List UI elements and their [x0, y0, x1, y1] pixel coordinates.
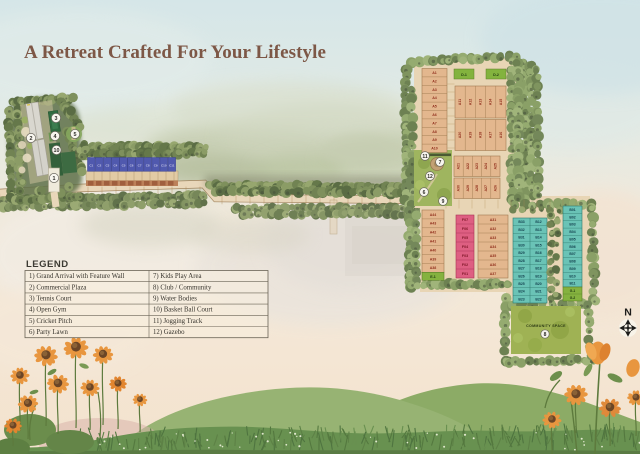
- svg-text:B24: B24: [518, 290, 524, 294]
- svg-text:A15: A15: [499, 99, 503, 106]
- svg-text:A2: A2: [432, 79, 437, 83]
- svg-text:A33: A33: [490, 236, 497, 240]
- svg-text:A13: A13: [478, 99, 482, 106]
- svg-text:C2: C2: [97, 164, 101, 168]
- svg-text:B10: B10: [569, 274, 575, 278]
- svg-text:A29: A29: [466, 185, 470, 192]
- svg-text:G-1: G-1: [570, 289, 576, 293]
- svg-text:C8: C8: [146, 164, 150, 168]
- svg-text:A25: A25: [493, 163, 497, 170]
- svg-text:C6: C6: [130, 164, 134, 168]
- svg-text:B02: B02: [569, 215, 575, 219]
- svg-text:B12: B12: [535, 220, 541, 224]
- svg-text:3: 3: [55, 116, 58, 122]
- svg-text:E-1: E-1: [430, 275, 436, 279]
- svg-text:A17: A17: [489, 132, 493, 139]
- svg-text:F07: F07: [462, 218, 468, 222]
- svg-text:1: 1: [53, 176, 56, 182]
- svg-text:A5: A5: [432, 105, 437, 109]
- svg-text:B25: B25: [518, 282, 524, 286]
- svg-text:B28: B28: [518, 259, 524, 263]
- svg-text:A40: A40: [430, 248, 437, 252]
- svg-text:A6: A6: [432, 113, 437, 117]
- svg-text:A20: A20: [458, 132, 462, 139]
- svg-text:C3: C3: [105, 164, 109, 168]
- svg-text:B17: B17: [535, 259, 541, 263]
- svg-text:2) Commercial Plaza: 2) Commercial Plaza: [29, 284, 86, 291]
- svg-text:9: 9: [442, 199, 445, 205]
- svg-text:A42: A42: [430, 231, 437, 235]
- svg-text:A26: A26: [493, 185, 497, 192]
- svg-text:4) Open Gym: 4) Open Gym: [29, 307, 67, 314]
- svg-text:4: 4: [54, 134, 57, 140]
- svg-text:B23: B23: [518, 297, 524, 301]
- svg-text:F05: F05: [462, 236, 468, 240]
- svg-text:B32: B32: [518, 228, 524, 232]
- svg-text:A8: A8: [432, 130, 437, 134]
- svg-text:B13: B13: [535, 228, 541, 232]
- svg-text:B09: B09: [569, 267, 575, 271]
- svg-text:B11: B11: [569, 282, 575, 286]
- svg-text:C1: C1: [89, 164, 93, 168]
- svg-text:7) Kids Play Area: 7) Kids Play Area: [153, 273, 202, 280]
- svg-text:8: 8: [544, 332, 547, 338]
- svg-text:A3: A3: [432, 88, 437, 92]
- svg-text:A21: A21: [457, 163, 461, 170]
- svg-text:10: 10: [54, 148, 60, 154]
- svg-text:B18: B18: [535, 267, 541, 271]
- svg-text:B31: B31: [518, 236, 524, 240]
- svg-text:A31: A31: [490, 218, 497, 222]
- svg-text:11) Jogging Track: 11) Jogging Track: [153, 318, 203, 325]
- svg-text:COMMUNITY SPACE: COMMUNITY SPACE: [526, 324, 566, 328]
- svg-text:A9: A9: [432, 138, 437, 142]
- svg-text:F06: F06: [462, 227, 468, 231]
- svg-text:A34: A34: [490, 245, 497, 249]
- svg-text:B30: B30: [518, 243, 524, 247]
- svg-text:B04: B04: [569, 230, 575, 234]
- svg-text:A1: A1: [432, 71, 437, 75]
- svg-text:A44: A44: [430, 213, 437, 217]
- svg-text:6: 6: [423, 190, 426, 196]
- svg-text:B26: B26: [518, 274, 524, 278]
- svg-text:B19: B19: [535, 274, 541, 278]
- svg-text:A18: A18: [478, 132, 482, 139]
- svg-text:9) Water Bodies: 9) Water Bodies: [153, 296, 197, 303]
- svg-text:12: 12: [427, 174, 433, 180]
- svg-text:A11: A11: [458, 99, 462, 105]
- svg-text:B07: B07: [569, 252, 575, 256]
- svg-text:1) Grand Arrival with Feature: 1) Grand Arrival with Feature Wall: [29, 273, 125, 280]
- svg-text:A24: A24: [484, 163, 488, 170]
- svg-text:A4: A4: [432, 96, 437, 100]
- svg-text:5) Cricket Pitch: 5) Cricket Pitch: [29, 318, 73, 325]
- svg-text:A32: A32: [490, 227, 497, 231]
- svg-text:B33: B33: [518, 220, 524, 224]
- svg-text:B06: B06: [569, 245, 575, 249]
- svg-text:A41: A41: [430, 239, 437, 243]
- svg-text:A38: A38: [430, 266, 437, 270]
- svg-text:A37: A37: [490, 272, 497, 276]
- svg-text:A14: A14: [489, 99, 493, 106]
- svg-text:2: 2: [30, 136, 33, 142]
- svg-text:C10: C10: [161, 164, 167, 168]
- svg-text:A43: A43: [430, 222, 437, 226]
- svg-text:7: 7: [439, 160, 442, 166]
- svg-text:B05: B05: [569, 237, 575, 241]
- svg-text:G-2: G-2: [570, 296, 576, 300]
- svg-text:B14: B14: [535, 236, 541, 240]
- svg-text:B15: B15: [535, 243, 541, 247]
- svg-text:B27: B27: [518, 267, 524, 271]
- svg-text:A7: A7: [432, 121, 437, 125]
- svg-text:A12: A12: [468, 99, 472, 106]
- svg-text:LEGEND: LEGEND: [26, 259, 69, 270]
- svg-text:B22: B22: [535, 297, 541, 301]
- svg-text:F03: F03: [462, 254, 468, 258]
- svg-text:3) Tennis Court: 3) Tennis Court: [29, 296, 72, 303]
- svg-text:A30: A30: [457, 185, 461, 192]
- svg-text:B08: B08: [569, 260, 575, 264]
- svg-text:F01: F01: [462, 272, 468, 276]
- svg-text:10) Basket Ball Court: 10) Basket Ball Court: [153, 307, 213, 314]
- svg-text:C5: C5: [122, 164, 126, 168]
- svg-text:D-1: D-1: [461, 73, 467, 77]
- svg-text:6) Party Lawn: 6) Party Lawn: [29, 329, 68, 336]
- svg-text:C4: C4: [114, 164, 118, 168]
- svg-text:A16: A16: [499, 132, 503, 139]
- svg-text:12) Gazebo: 12) Gazebo: [153, 329, 185, 336]
- svg-text:B20: B20: [535, 282, 541, 286]
- svg-text:A39: A39: [430, 257, 437, 261]
- svg-text:8) Club / Community: 8) Club / Community: [153, 284, 212, 291]
- svg-text:5: 5: [74, 132, 77, 138]
- svg-text:A19: A19: [468, 132, 472, 139]
- svg-text:N: N: [624, 307, 632, 319]
- svg-text:D-2: D-2: [493, 73, 499, 77]
- svg-text:F02: F02: [462, 263, 468, 267]
- svg-text:A22: A22: [466, 163, 470, 170]
- svg-text:A Retreat Crafted For Your Lif: A Retreat Crafted For Your Lifestyle: [24, 42, 326, 63]
- svg-text:B29: B29: [518, 251, 524, 255]
- svg-text:F04: F04: [462, 245, 468, 249]
- svg-text:B16: B16: [535, 251, 541, 255]
- svg-text:A35: A35: [490, 254, 497, 258]
- svg-text:A10: A10: [431, 147, 438, 151]
- svg-text:A23: A23: [475, 163, 479, 170]
- svg-text:C11: C11: [169, 164, 175, 168]
- svg-text:A27: A27: [484, 185, 488, 192]
- svg-text:A28: A28: [475, 185, 479, 192]
- svg-text:B03: B03: [569, 223, 575, 227]
- svg-text:C9: C9: [154, 164, 158, 168]
- svg-text:B01: B01: [569, 208, 575, 212]
- svg-text:11: 11: [422, 154, 428, 160]
- svg-text:C7: C7: [138, 164, 142, 168]
- svg-text:A36: A36: [490, 263, 497, 267]
- svg-text:B21: B21: [535, 290, 541, 294]
